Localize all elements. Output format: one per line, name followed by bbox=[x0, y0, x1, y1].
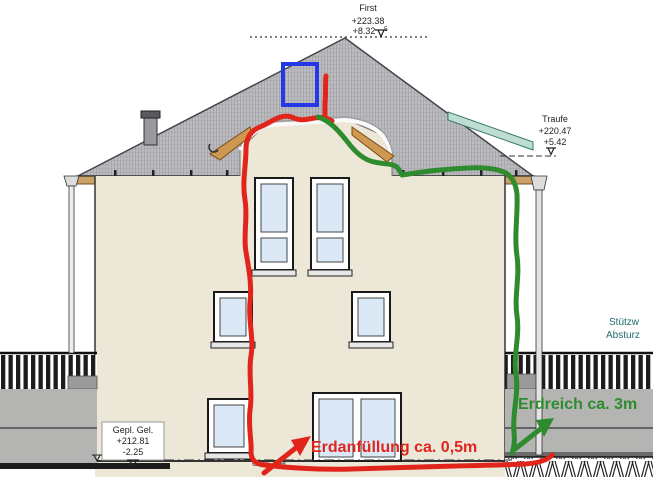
window-sill bbox=[349, 342, 393, 348]
gepl-gel-label: Gepl. Gel. bbox=[113, 425, 154, 435]
gepl-gel-elevation: +212.81 bbox=[117, 436, 150, 446]
first-relative: +8.32 bbox=[353, 26, 376, 36]
first-relative-sup: 5 bbox=[384, 26, 388, 33]
roof-chimney bbox=[141, 111, 160, 145]
window-sill bbox=[308, 270, 352, 276]
first-label: First bbox=[359, 3, 377, 13]
first-label-block: First +223.38 +8.32 5 bbox=[352, 3, 388, 36]
house-elevation-svg: First +223.38 +8.32 5 Traufe +220.47 +5.… bbox=[0, 0, 653, 477]
traufe-label-block: Traufe +220.47 +5.42 bbox=[539, 114, 572, 147]
stuetzwand-label-block: Stützw Absturz bbox=[606, 317, 640, 341]
first-elevation: +223.38 bbox=[352, 16, 385, 26]
window-sill bbox=[252, 270, 296, 276]
downspout-left bbox=[64, 176, 79, 353]
ground-edge-band bbox=[0, 463, 170, 469]
stuetzwand-label-line2: Absturz bbox=[606, 330, 640, 341]
traufe-label: Traufe bbox=[542, 114, 568, 124]
window-sill bbox=[211, 342, 255, 348]
red-spur-line bbox=[325, 76, 326, 117]
ground-window bbox=[205, 399, 253, 459]
stuetzwand-label-line1: Stützw bbox=[609, 317, 640, 328]
level-marker-icon bbox=[546, 148, 556, 155]
traufe-relative: +5.42 bbox=[544, 137, 567, 147]
right-fence bbox=[505, 353, 653, 389]
middle-window-right bbox=[349, 292, 393, 348]
earth-note-text: Erdreich ca. 3m bbox=[518, 396, 637, 413]
gepl-gel-box: Gepl. Gel. +212.81 -2.25 bbox=[102, 422, 164, 466]
gepl-gel-relative: -2.25 bbox=[123, 447, 144, 457]
window-sill bbox=[205, 453, 253, 459]
traufe-level-line bbox=[500, 148, 556, 156]
traufe-elevation: +220.47 bbox=[539, 126, 572, 136]
first-level-line bbox=[250, 30, 428, 37]
ground-hatch bbox=[505, 458, 653, 477]
fill-note-text: Erdanfüllung ca. 0,5m bbox=[311, 439, 477, 456]
upper-window-left bbox=[252, 178, 296, 276]
elevation-drawing-page: First +223.38 +8.32 5 Traufe +220.47 +5.… bbox=[0, 0, 653, 477]
upper-window-right bbox=[308, 178, 352, 276]
left-fence bbox=[0, 353, 97, 389]
